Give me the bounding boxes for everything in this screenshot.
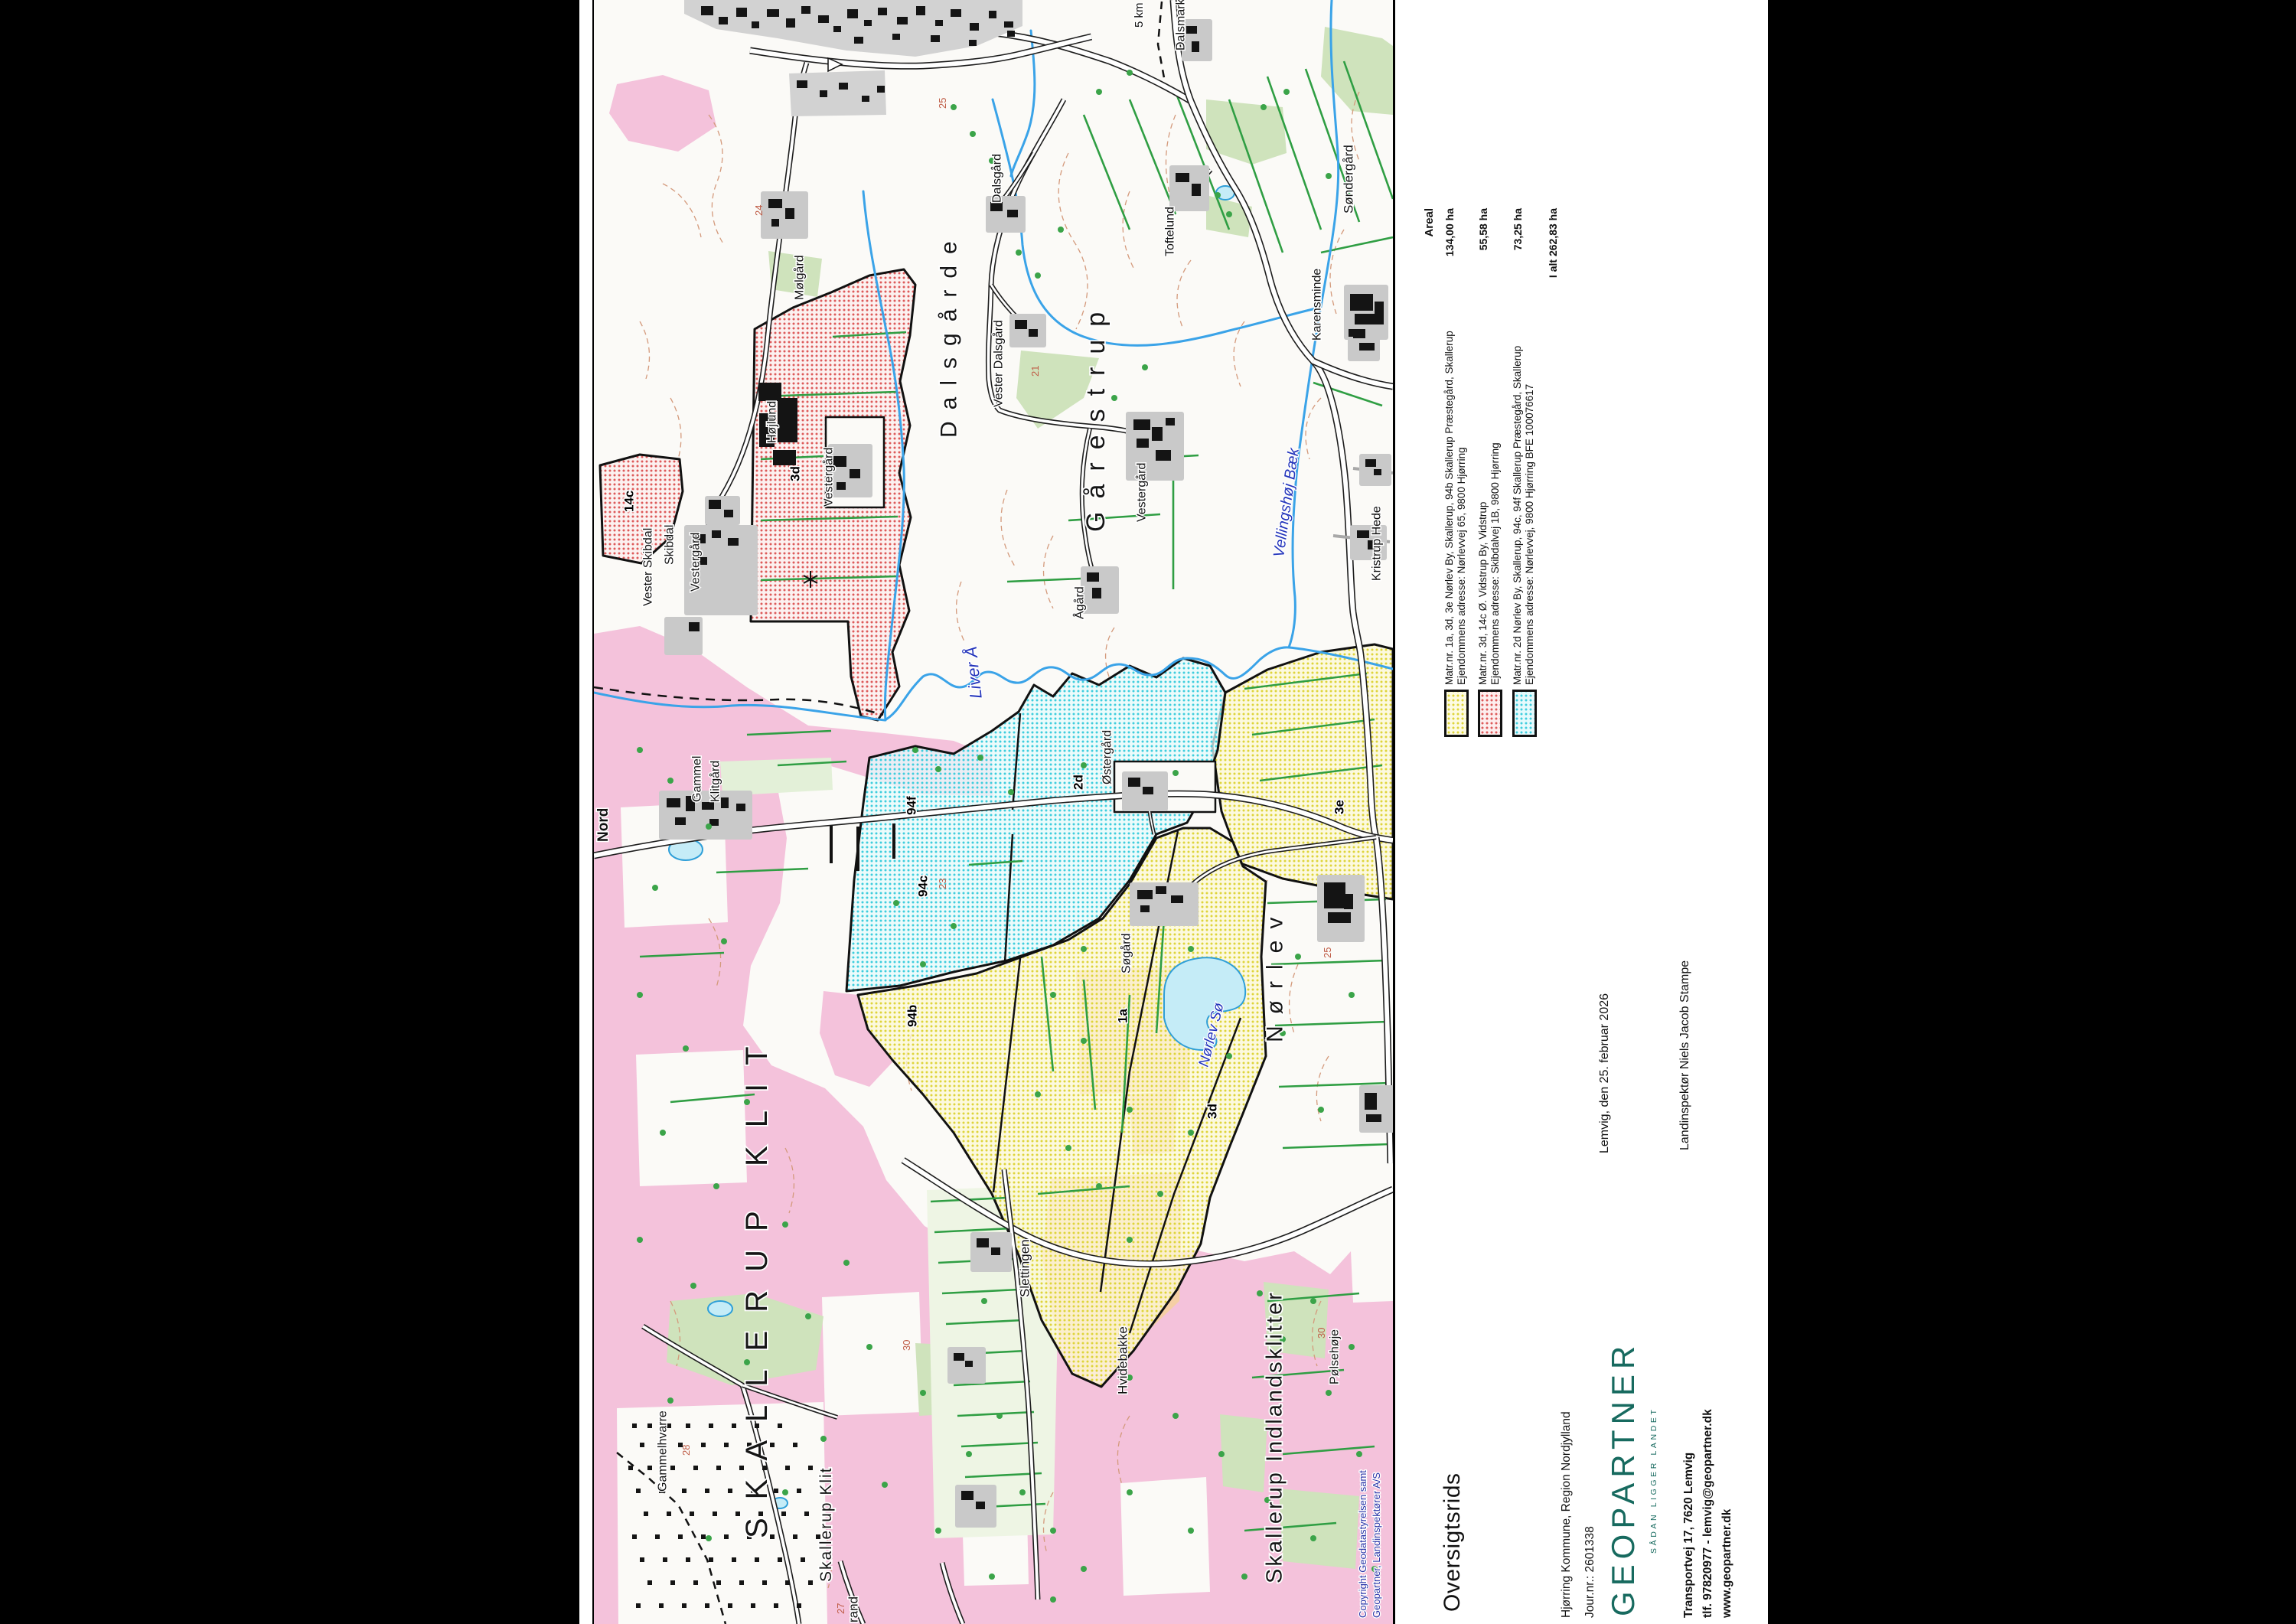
place-label: Vestergård <box>689 533 703 592</box>
parcel-number-label: 14c <box>621 491 636 512</box>
contour-elevation-label: 30 <box>1316 1328 1327 1339</box>
place-label: Gammel <box>691 756 704 802</box>
contour-elevation-label: 24 <box>753 205 765 216</box>
place-label: Mølgård <box>793 255 807 300</box>
surveyor-line: Landinspektør Niels Jacob Stampe <box>1678 960 1692 1150</box>
contour-elevation-label: 21 <box>1029 366 1041 377</box>
place-label: Hvidebakke <box>1115 1326 1130 1394</box>
geopartner-tagline: SÅDAN LIGGER LANDET <box>1649 1407 1658 1554</box>
legend-entry-yellow: Matr.nr. 1a, 3d, 3e Nørlev By, Skallerup… <box>1443 201 1471 737</box>
place-label: Nord <box>595 808 612 842</box>
legend-area-value: 73,25 ha <box>1512 208 1524 354</box>
rotated-document: NordGammelKlitgårdVester SkibdalSkibdalV… <box>579 0 1768 1624</box>
legend-areal-header: Areal <box>1423 208 1436 323</box>
office-address: Transportvej 17, 7620 Lemvig <box>1682 1453 1696 1618</box>
place-label: Ågård <box>1072 586 1087 619</box>
parcel-number-label: 3d <box>1205 1104 1219 1119</box>
municipality-line: Hjørring Kommune, Region Nordjylland <box>1560 1411 1574 1618</box>
legend-area-value: 55,58 ha <box>1477 208 1489 354</box>
area-name-label: Dalsgårde <box>937 230 962 438</box>
place-label: rand <box>846 1596 860 1622</box>
place-label: Søndergård <box>1341 145 1355 214</box>
place-label: Højlund <box>766 401 779 443</box>
copyright-note: Copyright Geodatastyrelsen samt <box>1357 1470 1368 1618</box>
legend-address-line: Ejendommens adresse: Skibdalvej 1B, 9800… <box>1489 442 1501 685</box>
legend-entry-red: Matr.nr. 3d, 14c Ø. Vidstrup By, Vidstru… <box>1477 201 1505 737</box>
place-label: Skibdal <box>664 525 677 565</box>
legend-area-value: 134,00 ha <box>1443 208 1456 354</box>
map-area: NordGammelKlitgårdVester SkibdalSkibdalV… <box>594 0 1393 1624</box>
place-label: Søgård <box>1120 934 1133 973</box>
contour-elevation-label: 30 <box>901 1340 912 1351</box>
parcel-number-label: 3d <box>788 466 802 481</box>
legend-matr-line: Matr.nr. 1a, 3d, 3e Nørlev By, Skallerup… <box>1443 331 1455 685</box>
topographic-map: NordGammelKlitgårdVester SkibdalSkibdalV… <box>594 0 1393 1624</box>
legend-matr-line: Matr.nr. 2d Nørlev By, Skallerup, 94c, 9… <box>1512 346 1523 685</box>
contour-elevation-label: 23 <box>937 879 948 889</box>
place-label: Klitgård <box>709 761 722 802</box>
geopartner-logo: GEOPARTNER <box>1605 1341 1642 1616</box>
place-label: Gammelhvarre <box>657 1410 670 1492</box>
area-name-label: Gårestrup <box>1081 299 1110 532</box>
office-phone-email: tlf. 97820977 - lemvig@geopartner.dk <box>1701 1409 1715 1618</box>
page-title: Oversigtsrids <box>1440 1472 1466 1612</box>
screenshot-stage: NordGammelKlitgårdVester SkibdalSkibdalV… <box>0 0 2296 1624</box>
legend-matr-line: Matr.nr. 3d, 14c Ø. Vidstrup By, Vidstru… <box>1477 502 1489 685</box>
map-frame-line-bottom <box>1393 0 1395 1624</box>
place-label: Slettingen <box>1017 1239 1032 1297</box>
contour-elevation-label: 28 <box>680 1445 692 1456</box>
parcel-number-label: 1a <box>1115 1009 1130 1023</box>
copyright-note: Geopartner, Landinspektører A/S <box>1371 1472 1382 1618</box>
place-label: Østergård <box>1101 730 1114 784</box>
parcel-number-label: 94c <box>915 876 930 897</box>
place-label: Vester Dalsgård <box>992 320 1006 407</box>
office-website: www.geopartner.dk <box>1720 1509 1734 1618</box>
place-label: Dalsmark <box>1175 0 1188 51</box>
place-label: Vestergård <box>822 448 836 507</box>
legend-swatch-yellow <box>1444 690 1469 737</box>
legend-total: I alt 262,83 ha <box>1547 208 1559 399</box>
legend-swatch-red <box>1478 690 1502 737</box>
place-label: Vester Skibdal <box>642 528 655 606</box>
place-label: Toftelund <box>1164 207 1177 256</box>
parcel-number-label: 2d <box>1071 774 1085 790</box>
place-label: Karensminde <box>1311 269 1324 341</box>
area-name-label: Skallerup Klit <box>817 1466 835 1582</box>
parcel-number-label: 94f <box>904 796 918 815</box>
contour-elevation-label: 25 <box>1322 947 1333 958</box>
contour-elevation-label: 25 <box>937 98 948 109</box>
journal-number: Jour.nr.: 2601338 <box>1583 1526 1597 1618</box>
area-name-label: SKALLERUP KLIT <box>740 1028 774 1538</box>
document-page: NordGammelKlitgårdVester SkibdalSkibdalV… <box>579 0 1768 1624</box>
legend-swatch-cyan <box>1512 690 1537 737</box>
area-name-label: Skallerup Indlandsklitter <box>1263 1290 1287 1583</box>
legend-entry-cyan: Matr.nr. 2d Nørlev By, Skallerup, 94c, 9… <box>1512 201 1539 737</box>
contour-elevation-label: 27 <box>835 1603 846 1614</box>
place-label: Pølsehøje <box>1329 1329 1342 1384</box>
place-label: Kristrup Hede <box>1371 506 1384 581</box>
place-label: Dalsgård <box>990 154 1004 203</box>
parcel-number-label: 3e <box>1332 800 1346 814</box>
area-name-label: Nørlev <box>1263 906 1288 1042</box>
legend-address-line: Ejendommens adresse: Nørlevvej, 9800 Hjø… <box>1524 384 1535 685</box>
parcel-number-label: 94b <box>905 1005 919 1027</box>
place-label: Vestergård <box>1135 463 1149 522</box>
place-label: 5 km <box>1133 2 1146 28</box>
legend-address-line: Ejendommens adresse: Nørlevvej 65, 9800 … <box>1456 447 1467 685</box>
date-line: Lemvig, den 25. februar 2026 <box>1598 993 1612 1153</box>
